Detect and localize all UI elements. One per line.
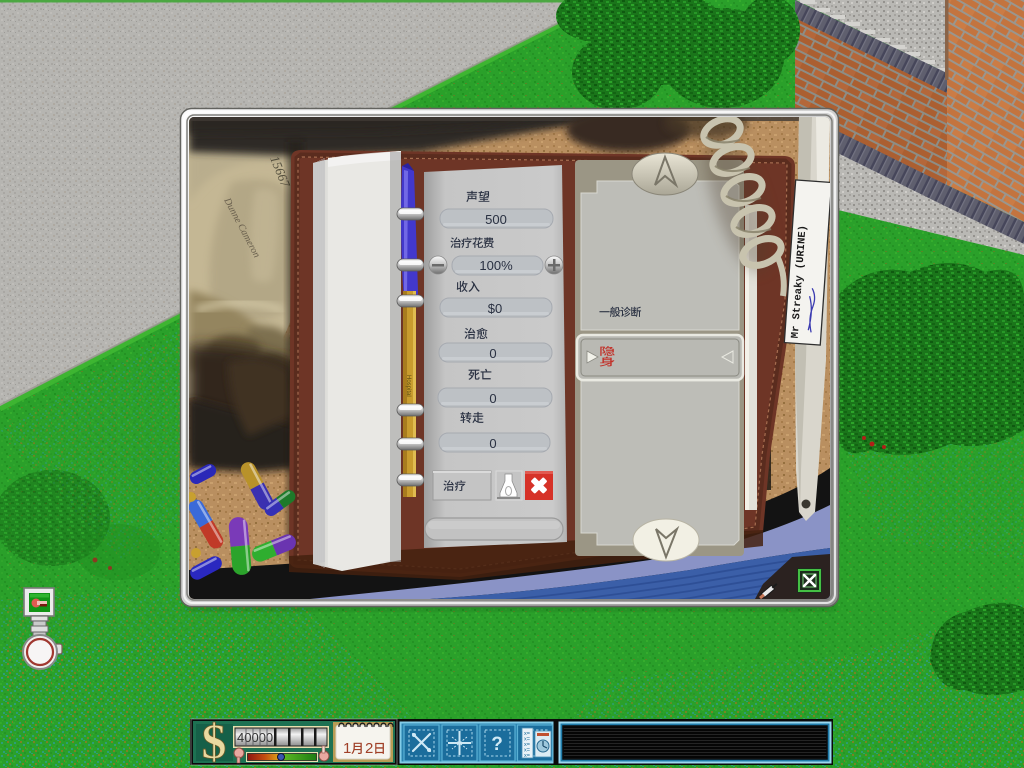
- svg-text:2: 2: [365, 740, 373, 757]
- svg-text:100%: 100%: [479, 258, 513, 273]
- svg-text:Hospital: Hospital: [405, 375, 411, 397]
- svg-text:0: 0: [489, 436, 496, 451]
- svg-text:0: 0: [489, 346, 496, 361]
- svg-text:1: 1: [343, 740, 351, 757]
- svg-text:x=: x=: [524, 753, 530, 759]
- svg-text:40000: 40000: [237, 730, 273, 745]
- svg-text:500: 500: [485, 212, 507, 227]
- svg-text:$: $: [202, 713, 227, 768]
- svg-text:$0: $0: [488, 301, 502, 316]
- svg-text:0: 0: [489, 391, 496, 406]
- svg-text:?: ?: [491, 734, 503, 755]
